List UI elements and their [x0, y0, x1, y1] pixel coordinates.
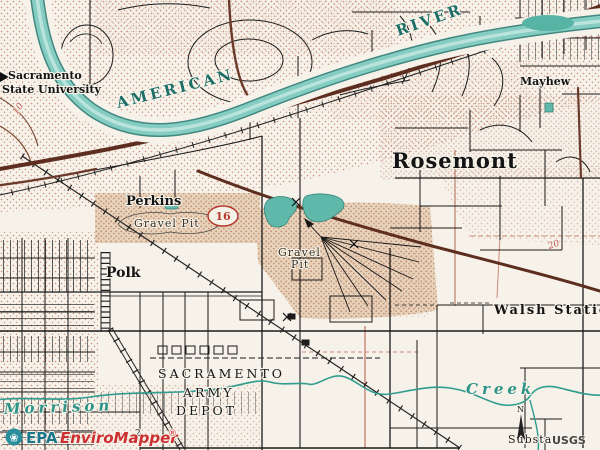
topo-map-canvas[interactable]: 16 Sacramento State University AMERICAN …: [0, 0, 600, 450]
label-depot-3: DEPOT: [176, 403, 237, 418]
route-shield-number: 16: [215, 210, 231, 223]
label-gravel-pit-center-2: Pit: [291, 258, 309, 271]
label-rosemont: Rosemont: [392, 148, 518, 173]
label-polk: Polk: [106, 265, 141, 281]
enviromapper-label: EnviroMapper: [60, 429, 179, 447]
label-sac-state-1: Sacramento: [8, 69, 82, 82]
label-gravel-pit-west: Gravel Pit: [134, 217, 200, 230]
label-depot-2: ARMY: [182, 385, 235, 400]
label-walsh-station: Walsh Station: [493, 303, 600, 318]
epa-flower-icon: ❀: [9, 432, 18, 445]
epa-label: EPA: [26, 429, 58, 447]
pond: [545, 103, 553, 112]
registered-mark: ®: [168, 429, 177, 439]
label-morrison: Morrison: [3, 396, 114, 418]
label-perkins: Perkins: [126, 194, 181, 209]
label-depot-1: SACRAMENTO: [158, 366, 285, 381]
label-substation: Substa: [508, 433, 552, 446]
route-16-shield: 16: [208, 206, 238, 226]
label-sac-state-2: State University: [2, 83, 101, 96]
north-arrow-label: N: [517, 405, 524, 414]
usgs-watermark: USGS: [552, 434, 586, 447]
topo-map-svg: 16 Sacramento State University AMERICAN …: [0, 0, 600, 450]
label-mayhew: Mayhew: [520, 75, 571, 88]
north-arrow: N: [517, 405, 525, 440]
epa-enviromapper-logo[interactable]: ❀ EPA EnviroMapper ®: [6, 429, 180, 448]
usgs-label: USGS: [552, 434, 586, 447]
label-creek: Creek: [466, 380, 535, 398]
